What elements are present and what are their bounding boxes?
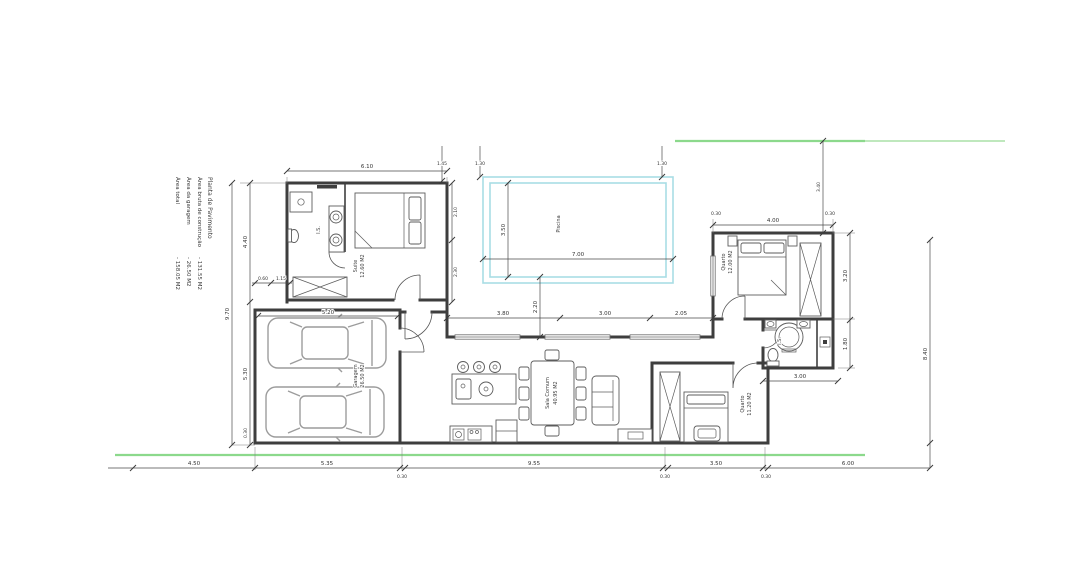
- dim-pool-gap: 2.20: [533, 300, 539, 313]
- dim-courtyard-1: 3.80: [497, 311, 510, 317]
- dim-setback-2: 1.30: [475, 161, 485, 167]
- dim-setback-right: 3.40: [816, 182, 822, 192]
- bedroom-right-label: Quarto: [721, 253, 727, 270]
- kitchen-counter: [450, 426, 492, 442]
- pillow: [741, 243, 761, 253]
- dim-right-inner-bottom: 1.80: [843, 337, 849, 350]
- legend-label: Área da garagem: [182, 177, 193, 257]
- legend-label: Área total: [171, 177, 182, 257]
- island-sink: [456, 379, 471, 399]
- sofa-icon: [592, 376, 619, 425]
- suite-label: Suite: [353, 260, 359, 273]
- bedroom-bottom-label: Quarto: [740, 395, 746, 412]
- dim-bottom-8: 6.00: [842, 461, 855, 467]
- dim-left-inner-top: 4.40: [243, 235, 249, 248]
- dim-bottom-6: 3.50: [710, 461, 723, 467]
- dim-suite-small-1: 0.60: [258, 276, 268, 282]
- legend-value: - 131.55 M2: [193, 257, 204, 290]
- dim-right-inner-top: 3.20: [843, 269, 849, 282]
- garage-walls: [255, 310, 400, 443]
- suite-bath-label: I.S.: [316, 226, 322, 234]
- legend-block: Planta de Pavimento Área bruta de constr…: [171, 177, 215, 303]
- bedroom-right-closet: [800, 243, 821, 316]
- garage-contents: [266, 314, 386, 441]
- bedroom-right-furniture: Quarto 12.00 M2: [721, 236, 821, 316]
- suite-bath-door: [329, 252, 345, 268]
- dining-living-furniture: Sala Comum 40.95 M2: [519, 350, 652, 442]
- tv-bench: [618, 429, 652, 442]
- dim-bedroom-top: 4.00: [767, 218, 780, 224]
- dim-bottom-4: 9.55: [528, 461, 541, 467]
- pool-label: Piscina: [556, 215, 562, 232]
- pool-outer-edge: [483, 177, 673, 283]
- dim-pool-width: 7.00: [572, 252, 585, 258]
- bedroom-bottom-door: [733, 363, 758, 388]
- dim-pool-height: 3.50: [501, 223, 507, 236]
- storage-dot: [823, 340, 827, 344]
- kitchen-furniture: [450, 362, 517, 443]
- bedroom-bottom-area: 11.20 M2: [747, 392, 753, 415]
- toilet-tank: [767, 361, 779, 366]
- garage-door: [400, 328, 424, 352]
- dim-courtyard-2: 3.00: [599, 311, 612, 317]
- dim-garage-top: 5.20: [322, 310, 335, 316]
- nightstand: [728, 236, 737, 246]
- bathroom-right-label: I.S.: [777, 337, 783, 345]
- nightstand: [788, 236, 797, 246]
- suite-entry-door: [395, 275, 420, 300]
- toilet-icon: [768, 349, 778, 362]
- dim-bottom-5: 0.30: [660, 474, 670, 480]
- dim-suite-right-bottom: 2.30: [453, 267, 459, 277]
- toilet-tank: [288, 229, 292, 242]
- suite-area: 12.60 M2: [360, 254, 366, 277]
- car-top: [268, 314, 386, 372]
- dim-suite-right-top: 2.10: [453, 207, 459, 217]
- shower-tray: [290, 192, 312, 212]
- legend-value: - 158.05 M2: [171, 257, 182, 290]
- front-entry-door: [405, 312, 432, 339]
- pool: Piscina: [483, 177, 673, 283]
- dim-setback-3: 1.30: [657, 161, 667, 167]
- legend-row-total-area: Área total - 158.05 M2: [171, 177, 182, 303]
- suite-closet: [293, 277, 347, 297]
- basin-icon: [330, 211, 342, 223]
- pillow: [687, 395, 725, 404]
- dim-bedroom-top-s1: 0.30: [711, 211, 721, 217]
- dim-left-small: 0.30: [243, 428, 249, 438]
- living-room-area: 40.95 M2: [553, 381, 559, 404]
- dim-left-inner-bottom: 5.30: [243, 367, 249, 380]
- bathroom-right-furniture: I.S.: [765, 320, 830, 366]
- living-windows: [455, 335, 700, 339]
- floor-plan-drawing: Piscina: [0, 0, 1080, 566]
- bar-stools: [458, 362, 501, 373]
- dim-suite-top: 6.10: [361, 164, 374, 170]
- legend-label: Área bruta de construção: [193, 177, 204, 257]
- basin-icon: [330, 234, 342, 246]
- dim-bath-width: 3.00: [794, 374, 807, 380]
- legend-row-garage-area: Área da garagem - 26.50 M2: [182, 177, 193, 303]
- pillow: [409, 197, 421, 220]
- legend-row-gross-area: Área bruta de construção - 131.55 M2: [193, 177, 204, 303]
- suite-top-vent: [317, 185, 337, 189]
- bedroom-right-area: 12.00 M2: [728, 250, 734, 273]
- dim-right-outer: 8.40: [923, 347, 929, 360]
- dim-left-outer: 9.70: [225, 307, 231, 320]
- dim-setback-1: 1.45: [437, 161, 447, 167]
- garage-area: 26.50 M2: [360, 364, 366, 387]
- pool-inner-edge: [490, 183, 666, 277]
- dim-bottom-3: 0.30: [397, 474, 407, 480]
- dim-bottom-1: 4.50: [188, 461, 201, 467]
- dim-bottom-2: 5.35: [321, 461, 334, 467]
- bedroom-bottom-closet: [660, 372, 680, 441]
- dim-courtyard-3: 2.05: [675, 311, 688, 317]
- dim-bedroom-top-s2: 0.30: [825, 211, 835, 217]
- pillow: [764, 243, 784, 253]
- garage-label: Garagem: [353, 364, 359, 387]
- plan-title: Planta de Pavimento: [204, 177, 215, 303]
- bedroom-right-door: [722, 296, 745, 319]
- suite-furniture: [288, 192, 425, 297]
- floor-plan-sheet: Planta de Pavimento Área bruta de constr…: [0, 0, 1080, 566]
- cooktop-icon: [479, 382, 493, 396]
- dim-bottom-7: 0.30: [761, 474, 771, 480]
- bedroom-bottom-furniture: Quarto 11.20 M2: [660, 372, 753, 442]
- dim-suite-small-2: 1.15: [276, 276, 286, 282]
- living-room-label: Sala Comum: [545, 377, 551, 409]
- pillow: [409, 222, 421, 244]
- bedroom-right-window: [711, 256, 715, 296]
- car-bottom: [266, 383, 384, 441]
- legend-value: - 26.50 M2: [182, 257, 193, 286]
